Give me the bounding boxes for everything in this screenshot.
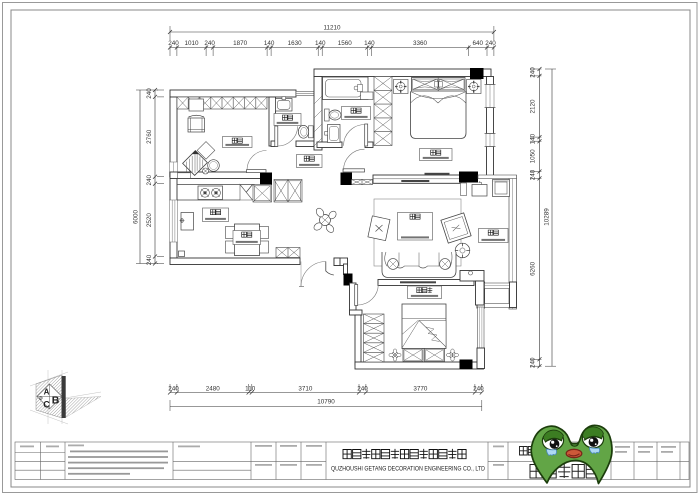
svg-text:2760: 2760 (146, 129, 153, 144)
svg-text:B: B (52, 395, 60, 407)
svg-text:A: A (44, 388, 50, 397)
svg-text:1010: 1010 (184, 40, 199, 47)
svg-text:10289: 10289 (544, 208, 551, 226)
svg-text:240: 240 (530, 67, 537, 78)
svg-text:640: 640 (472, 40, 483, 47)
svg-text:240: 240 (146, 174, 153, 185)
svg-text:10790: 10790 (317, 399, 335, 406)
svg-text:6260: 6260 (530, 261, 537, 276)
svg-text:6000: 6000 (133, 210, 140, 225)
svg-text:140: 140 (264, 40, 275, 47)
svg-text:240: 240 (530, 357, 537, 368)
svg-text:3360: 3360 (413, 40, 428, 47)
svg-text:1630: 1630 (288, 40, 303, 47)
svg-text:1050: 1050 (530, 149, 537, 164)
svg-text:240: 240 (168, 386, 179, 393)
svg-text:3770: 3770 (413, 386, 428, 393)
svg-text:2520: 2520 (146, 213, 153, 228)
svg-text:240: 240 (357, 386, 368, 393)
svg-text:3710: 3710 (298, 386, 313, 393)
svg-text:240: 240 (168, 40, 179, 47)
svg-text:QUZHOUSHI GETANG DECORATION EN: QUZHOUSHI GETANG DECORATION ENGINEERING … (331, 467, 486, 473)
svg-text:110: 110 (245, 386, 256, 393)
svg-text:C: C (43, 400, 50, 410)
svg-text:140: 140 (530, 133, 537, 144)
svg-text:240: 240 (530, 169, 537, 180)
svg-text:1560: 1560 (338, 40, 353, 47)
svg-text:140: 140 (364, 40, 375, 47)
svg-text:240: 240 (485, 40, 496, 47)
svg-text:1870: 1870 (233, 40, 248, 47)
svg-text:240: 240 (204, 40, 215, 47)
svg-text:240: 240 (473, 386, 484, 393)
svg-text:240: 240 (146, 88, 153, 99)
svg-text:140: 140 (315, 40, 326, 47)
svg-text:11210: 11210 (323, 25, 341, 32)
svg-text:2120: 2120 (530, 99, 537, 114)
svg-text:2480: 2480 (206, 386, 221, 393)
